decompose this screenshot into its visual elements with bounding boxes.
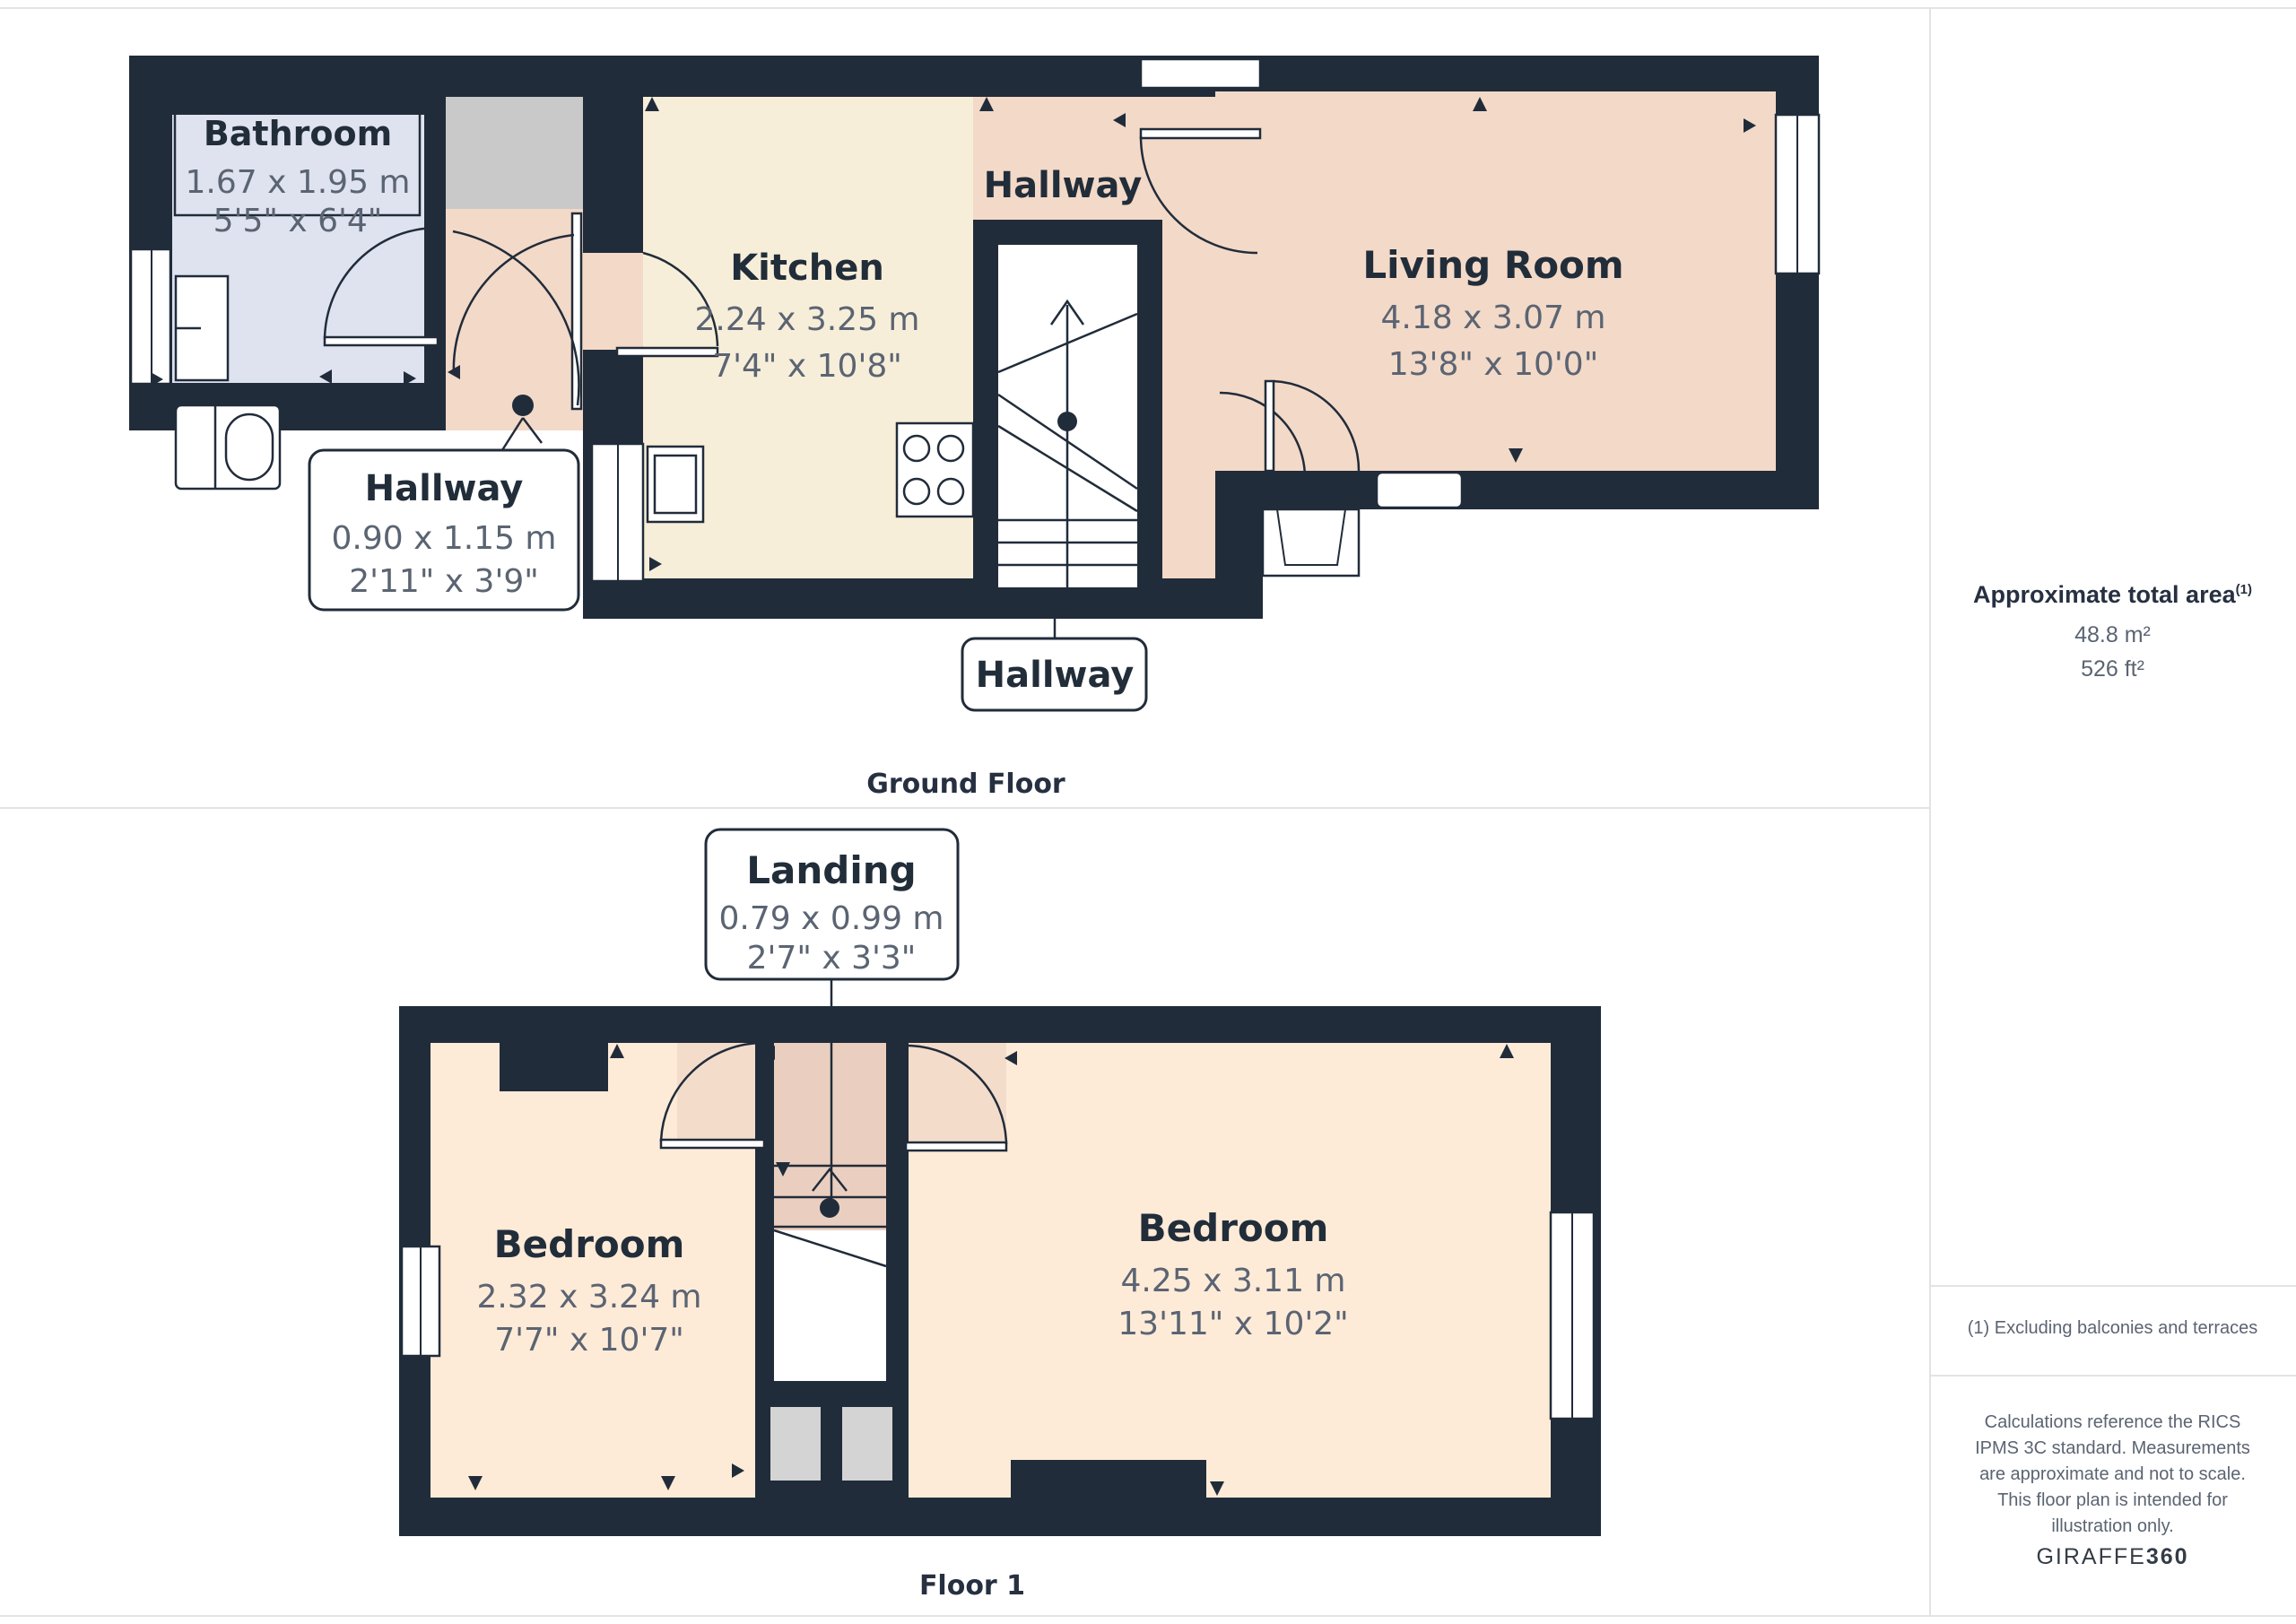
area-title-footnote-marker: (1) — [2236, 582, 2252, 597]
floorplan-page: Bathroom 1.67 x 1.95 m 5'5" x 6'4" Kitch… — [0, 0, 2296, 1624]
bedroom-right-imperial: 13'11" x 10'2" — [1118, 1306, 1348, 1342]
landing-imperial: 2'7" x 3'3" — [747, 940, 917, 977]
landing-metric: 0.79 x 0.99 m — [718, 900, 944, 937]
stair-bottom-wall — [755, 1381, 909, 1406]
kitchen-imperial: 7'4" x 10'8" — [712, 348, 902, 385]
bathroom-imperial: 5'5" x 6'4" — [213, 203, 383, 239]
giraffe360-logo: GIRAFFE360 — [1929, 1544, 2296, 1570]
bathroom-toilet — [176, 405, 280, 489]
area-footnote: (1) Excluding balconies and terraces — [1947, 1318, 2278, 1339]
window-bedroom-right — [1551, 1212, 1594, 1419]
bedroom-right-name: Bedroom — [1138, 1206, 1329, 1250]
window-bedroom-left — [402, 1246, 439, 1356]
window-living-right — [1776, 115, 1819, 274]
bedroom-left-imperial: 7'7" x 10'7" — [494, 1322, 684, 1359]
bedroom-left-metric: 2.32 x 3.24 m — [476, 1279, 701, 1316]
sidebar-divider-upper — [1929, 1285, 2296, 1287]
kitchen-hob — [897, 423, 973, 517]
bathroom-name: Bathroom — [204, 114, 392, 153]
ground-floor-caption: Ground Floor — [866, 769, 1065, 800]
living-imperial: 13'8" x 10'0" — [1388, 346, 1599, 383]
room-storage — [446, 97, 583, 209]
hallway-callout-imperial: 2'11" x 3'9" — [349, 563, 539, 600]
hallway-callout-name: Hallway — [365, 468, 524, 509]
landing-name: Landing — [746, 848, 916, 892]
window-kitchen-left — [592, 444, 643, 581]
giraffe360-logo-name: GIRAFFE — [2036, 1544, 2145, 1569]
kitchen-name: Kitchen — [730, 248, 884, 289]
bedroom-left-name: Bedroom — [494, 1222, 685, 1266]
living-metric: 4.18 x 3.07 m — [1380, 300, 1605, 336]
living-label: Living Room 4.18 x 3.07 m 13'8" x 10'0" — [1362, 243, 1623, 383]
kitchen-sink — [648, 447, 703, 522]
approximate-total-area-title: Approximate total area(1) — [1929, 581, 2296, 609]
bedroom-left-notch — [500, 1043, 608, 1091]
giraffe360-logo-number: 360 — [2146, 1544, 2189, 1569]
staircase-ground — [998, 245, 1137, 587]
bedroom-right-notch — [1011, 1460, 1206, 1498]
bedroom-right-label: Bedroom 4.25 x 3.11 m 13'11" x 10'2" — [1118, 1206, 1348, 1342]
bedroom-left-label: Bedroom 2.32 x 3.24 m 7'7" x 10'7" — [476, 1222, 701, 1359]
bedroom-right-metric: 4.25 x 3.11 m — [1120, 1263, 1345, 1299]
entry-porch-step — [1263, 509, 1359, 576]
floor-1-caption: Floor 1 — [919, 1570, 1025, 1602]
hallway-top-label: Hallway — [984, 165, 1143, 206]
total-area-metric: 48.8 m² — [1929, 622, 2296, 648]
window-bathroom-left — [131, 249, 170, 384]
kitchen-metric: 2.24 x 3.25 m — [694, 301, 919, 338]
room-hallway-small — [446, 209, 583, 430]
bathroom-metric: 1.67 x 1.95 m — [185, 164, 410, 201]
total-area-imperial: 526 ft² — [1929, 656, 2296, 682]
floorplan-canvas: Bathroom 1.67 x 1.95 m 5'5" x 6'4" Kitch… — [0, 0, 1929, 1624]
hallway-callout-bottom-name: Hallway — [976, 655, 1135, 696]
area-title-text: Approximate total area — [1973, 581, 2236, 608]
ground-floor-plan: Bathroom 1.67 x 1.95 m 5'5" x 6'4" Kitch… — [129, 56, 1819, 800]
living-name: Living Room — [1362, 243, 1623, 287]
doorway-left-threshold — [677, 1043, 755, 1143]
hallway-callout-metric: 0.90 x 1.15 m — [331, 520, 556, 557]
rics-disclaimer: Calculations reference the RICS IPMS 3C … — [1963, 1410, 2262, 1540]
bathroom-sink — [176, 276, 228, 380]
hallway-callout-bottom: Hallway — [962, 617, 1146, 710]
staircase-floor1 — [774, 1166, 886, 1381]
floor-1-plan: Landing 0.79 x 0.99 m 2'7" x 3'3" Bedroo… — [399, 829, 1601, 1602]
living-bottom-fixture — [1377, 473, 1462, 508]
sidebar-divider-lower — [1929, 1375, 2296, 1376]
